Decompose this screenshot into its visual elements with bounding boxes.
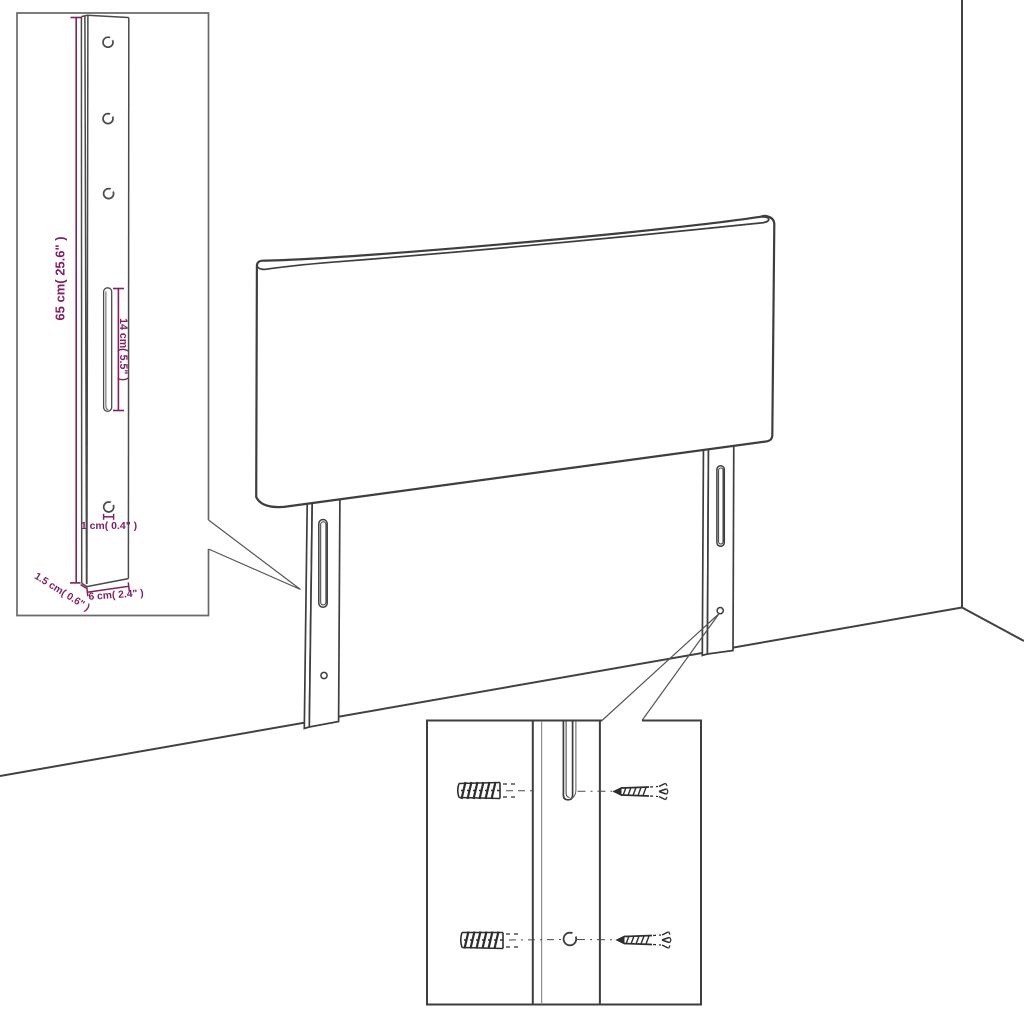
svg-text:14 cm( 5.5" ): 14 cm( 5.5" ) xyxy=(117,318,129,381)
svg-text:1 cm( 0.4" ): 1 cm( 0.4" ) xyxy=(81,520,137,532)
svg-text:65 cm( 25.6" ): 65 cm( 25.6" ) xyxy=(53,236,68,320)
